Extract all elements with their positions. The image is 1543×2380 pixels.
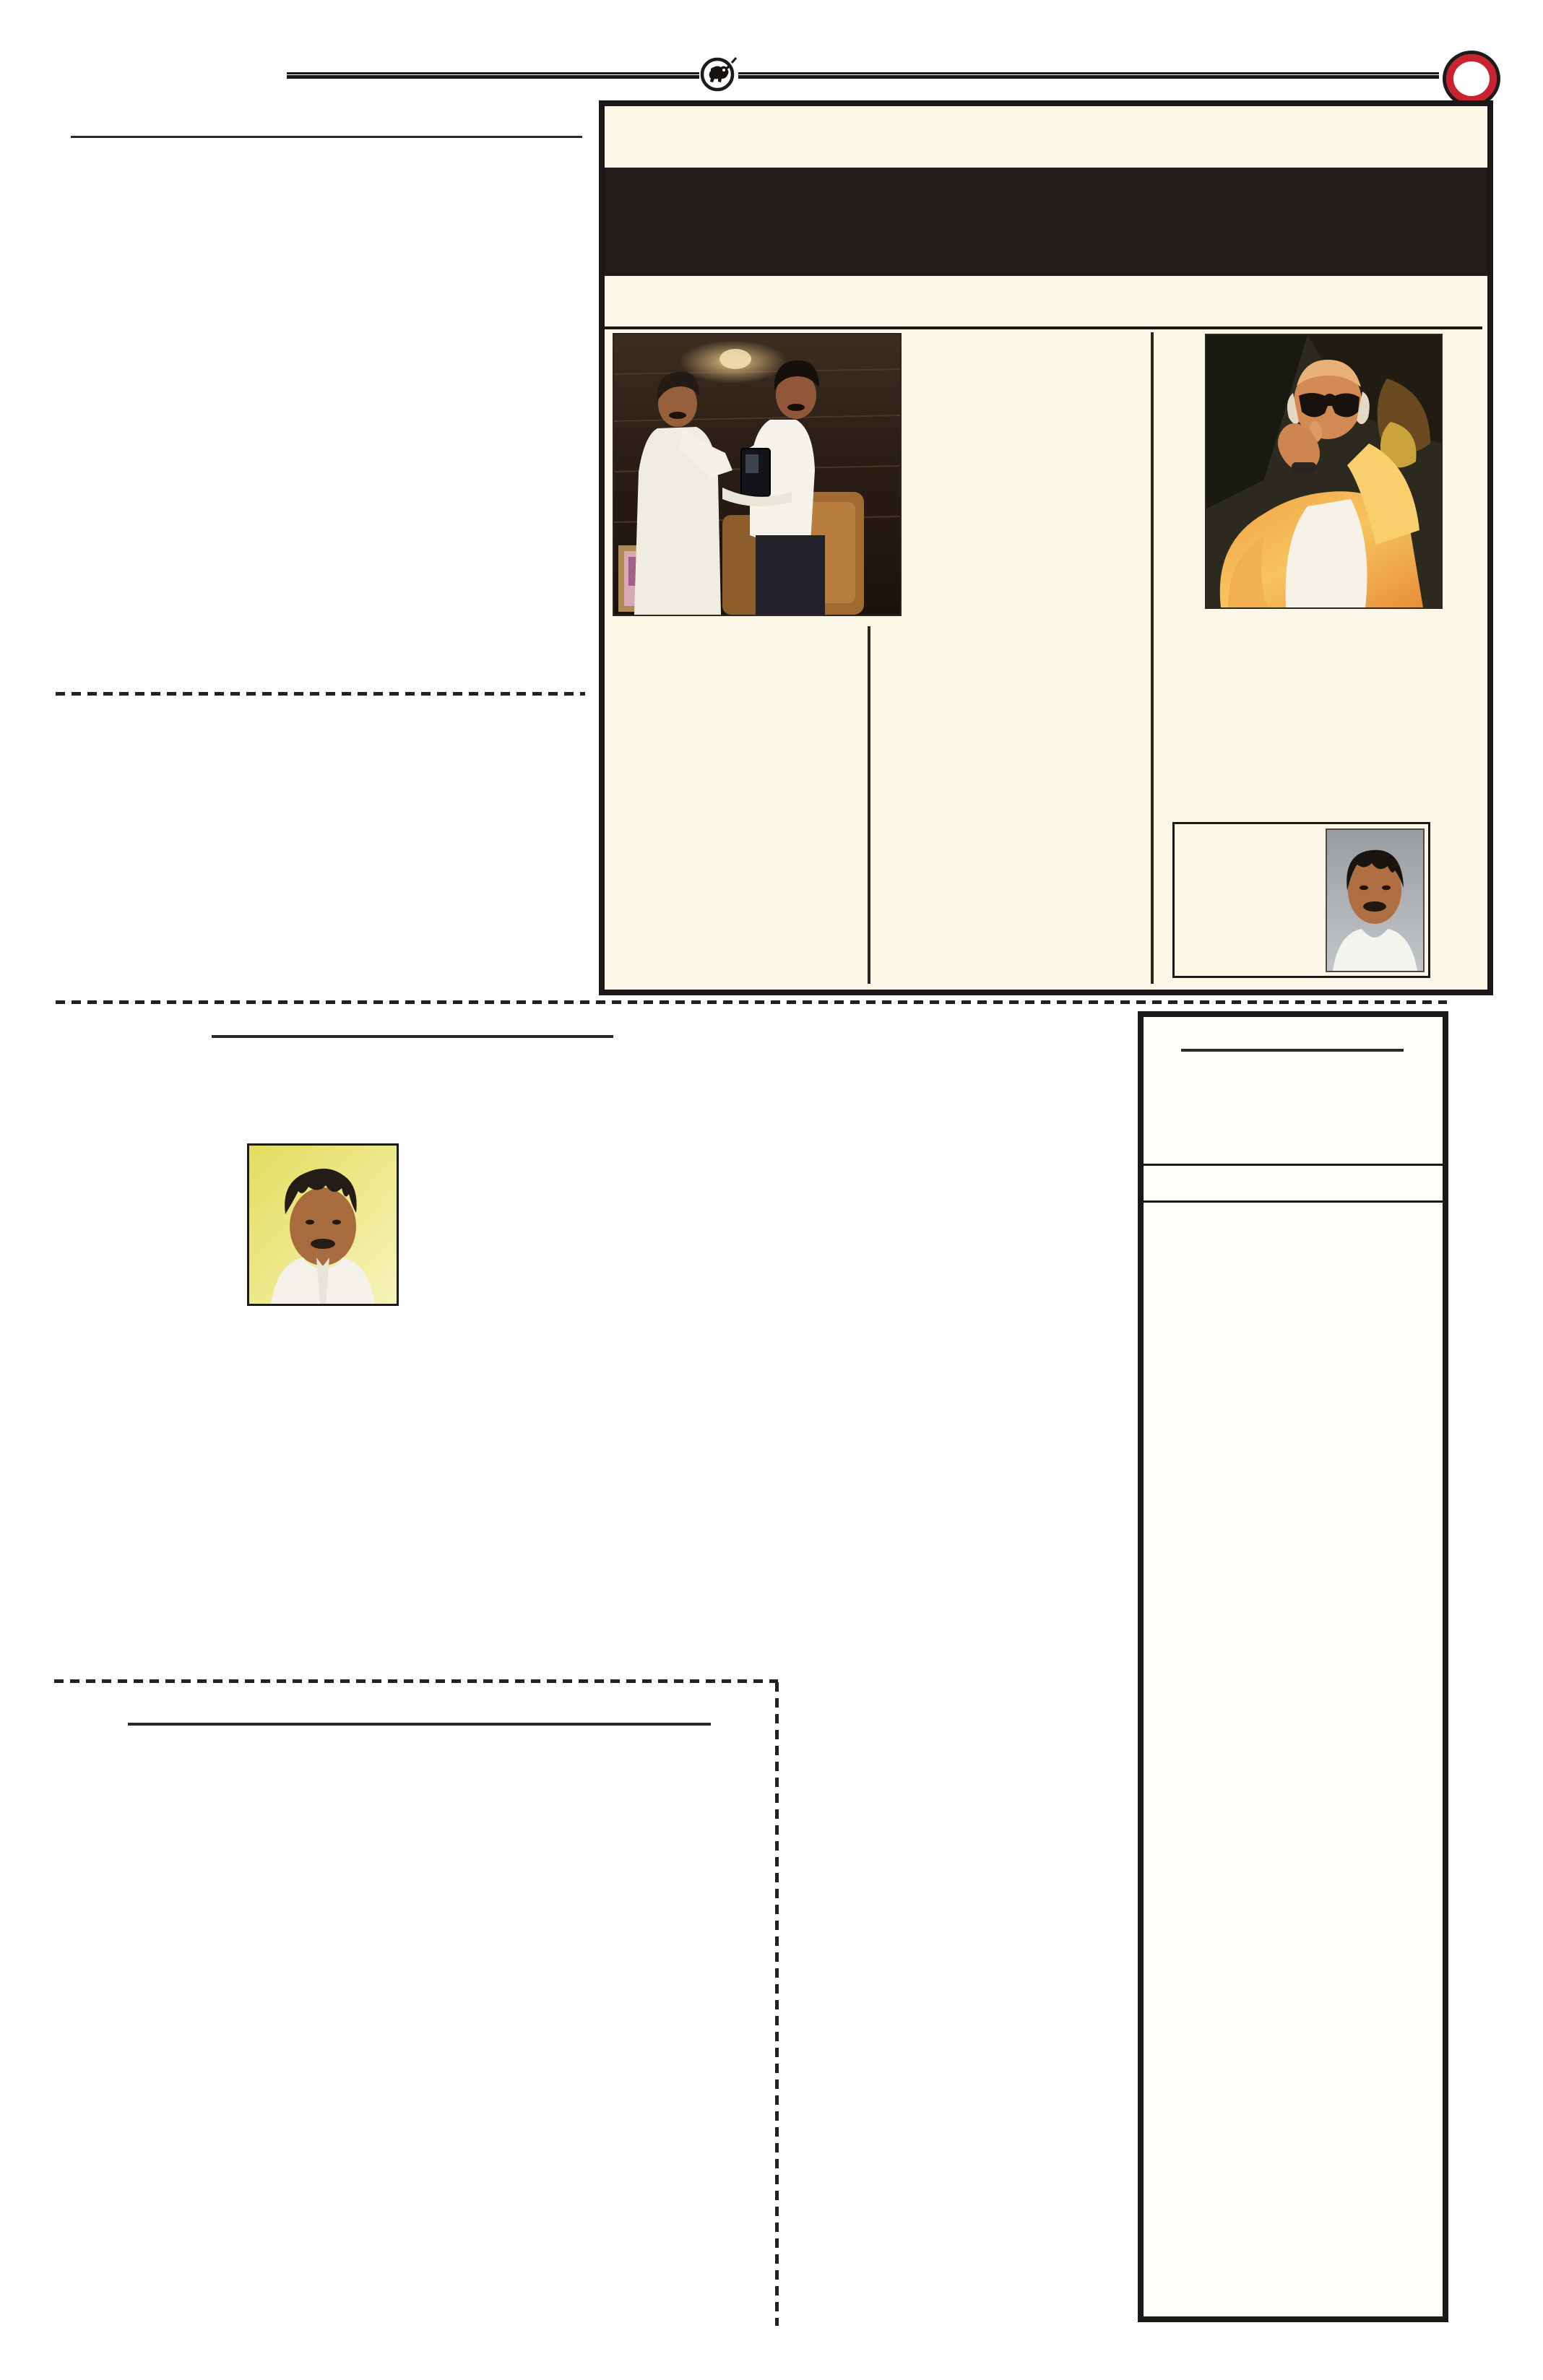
dashed-rule-vertical bbox=[775, 1682, 779, 2326]
masthead-rule-right-thin bbox=[738, 72, 1439, 74]
sidebar-box bbox=[1138, 1011, 1448, 2322]
newspaper-page bbox=[0, 0, 1543, 2380]
headline-underline-mid-left bbox=[212, 1035, 613, 1038]
sidebar-rule-top bbox=[1144, 1164, 1443, 1166]
masthead-rule-left-thick bbox=[287, 75, 699, 79]
column-divider-left bbox=[868, 626, 870, 984]
dashed-rule-full-width bbox=[56, 1000, 1447, 1004]
dashed-rule-left bbox=[56, 692, 585, 696]
headline-underline-top-left bbox=[71, 136, 582, 138]
sidebar-rule-bottom bbox=[1144, 1200, 1443, 1203]
dashed-rule-bottom-left bbox=[54, 1679, 778, 1683]
red-seal-icon bbox=[1443, 51, 1500, 107]
yellow-portrait-photo bbox=[247, 1143, 399, 1306]
feature-box bbox=[599, 100, 1493, 995]
sidebar-headline-underline bbox=[1181, 1049, 1404, 1052]
bull-emblem-icon bbox=[700, 56, 738, 93]
presentation-photo bbox=[613, 333, 902, 616]
poet-portrait-photo bbox=[1326, 828, 1425, 972]
headline-banner bbox=[605, 168, 1487, 276]
feature-box-rule bbox=[605, 326, 1482, 329]
inner-caption-box bbox=[1172, 822, 1430, 978]
headline-underline-bottom-left bbox=[128, 1723, 711, 1726]
masthead-rule-left-thin bbox=[287, 72, 699, 74]
column-divider-right bbox=[1151, 332, 1154, 984]
orange-shawl-painting bbox=[1205, 334, 1443, 609]
masthead-rule-right-thick bbox=[738, 75, 1439, 79]
